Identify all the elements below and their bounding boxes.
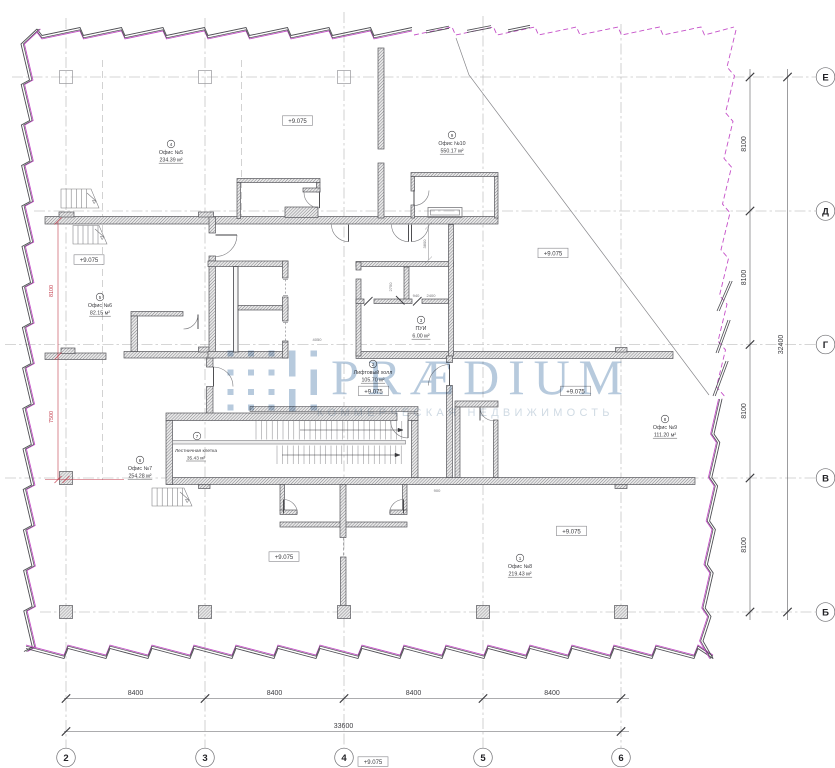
svg-text:2400: 2400 [427,293,437,298]
svg-text:1: 1 [519,556,522,561]
svg-text:2: 2 [63,753,68,764]
svg-text:ПУИ: ПУИ [416,326,427,332]
svg-text:8100: 8100 [741,403,748,419]
svg-text:Офис №10: Офис №10 [438,141,465,147]
svg-text:+9.075: +9.075 [80,258,99,264]
svg-text:8: 8 [664,417,667,422]
svg-text:8400: 8400 [128,690,144,697]
svg-text:2750: 2750 [388,282,393,292]
svg-text:219.43 м²: 219.43 м² [508,572,531,578]
svg-text:3: 3 [202,753,207,764]
svg-text:Офис №5: Офис №5 [159,150,183,156]
svg-text:82.15 м²: 82.15 м² [90,311,110,317]
svg-text:КОММЕРЧЕСКАЯ НЕДВИЖИМОСТЬ: КОММЕРЧЕСКАЯ НЕДВИЖИМОСТЬ [317,407,614,419]
svg-text:+9.075: +9.075 [288,119,307,125]
svg-text:8100: 8100 [741,537,748,553]
svg-text:Офис №8: Офис №8 [508,564,532,570]
svg-text:32400: 32400 [778,335,785,355]
svg-text:Лестничная клетка: Лестничная клетка [175,448,217,454]
svg-text:+9.075: +9.075 [562,529,581,535]
svg-text:234.39 м²: 234.39 м² [159,158,182,164]
svg-text:+9.075: +9.075 [364,760,383,766]
svg-text:Г: Г [823,340,829,351]
svg-text:6.00 м²: 6.00 м² [412,334,429,340]
svg-text:35.43 м²: 35.43 м² [187,456,206,462]
svg-text:9: 9 [451,133,454,138]
svg-text:5: 5 [480,753,486,764]
svg-text:6: 6 [618,753,623,764]
svg-text:В: В [822,473,829,484]
svg-text:8100: 8100 [49,285,55,297]
svg-text:8100: 8100 [741,270,748,286]
svg-text:6: 6 [139,458,142,463]
svg-text:Офис №9: Офис №9 [653,425,677,431]
svg-text:3800: 3800 [422,239,427,249]
svg-text:Б: Б [822,607,829,618]
svg-text:550.17 м²: 550.17 м² [440,149,463,155]
svg-text:4050: 4050 [313,337,323,342]
svg-text:8400: 8400 [267,690,283,697]
svg-text:111.20 м²: 111.20 м² [654,433,677,439]
svg-text:3: 3 [420,318,423,323]
svg-text:7: 7 [196,434,199,439]
svg-text:PRÆDIUM: PRÆDIUM [331,349,623,405]
svg-text:Офис №6: Офис №6 [88,303,112,309]
svg-text:8100: 8100 [741,136,748,152]
svg-text:33600: 33600 [334,723,354,730]
svg-text:Д: Д [822,206,829,217]
svg-text:5: 5 [99,295,102,300]
svg-text:940: 940 [413,293,420,298]
svg-text:254.28 м²: 254.28 м² [128,474,151,480]
svg-text:+9.075: +9.075 [544,251,563,257]
svg-text:Е: Е [822,72,828,83]
svg-text:900: 900 [434,488,441,493]
svg-text:4: 4 [170,142,173,147]
svg-text:Офис №7: Офис №7 [128,466,152,472]
svg-text:7500: 7500 [49,411,55,423]
svg-text:+9.075: +9.075 [275,555,294,561]
svg-text:4: 4 [341,753,347,764]
svg-text:8400: 8400 [406,690,422,697]
svg-text:8400: 8400 [544,690,560,697]
